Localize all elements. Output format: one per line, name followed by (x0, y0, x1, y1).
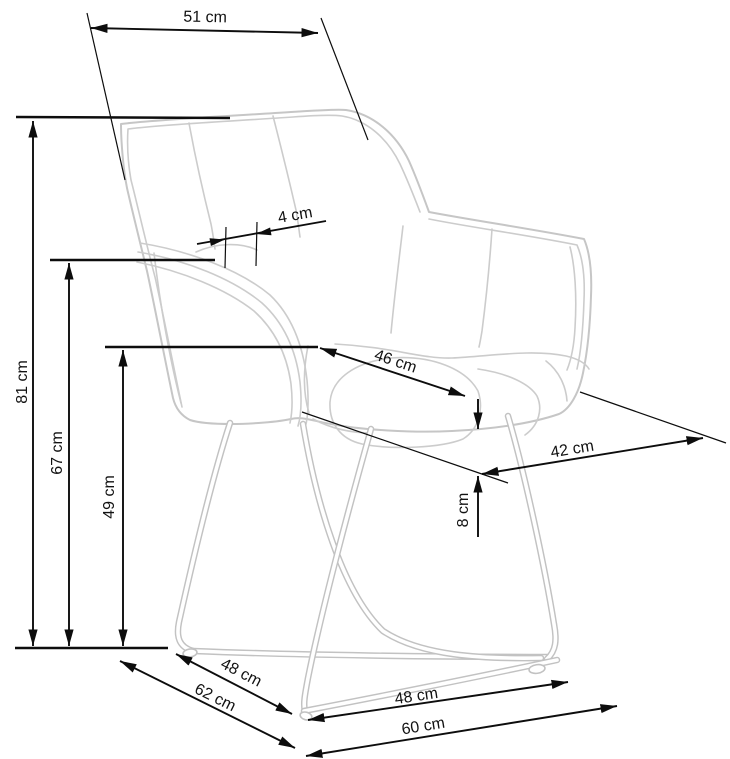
backrest-right-piping (429, 219, 584, 369)
dimension-67cm: 67 cm (49, 260, 215, 646)
dimension-4cm: 4 cm (197, 204, 326, 268)
armrest-roll-line-1 (140, 243, 308, 428)
dim-label-42cm: 42 cm (549, 438, 595, 462)
dim-label-48cm-side: 48 cm (218, 655, 265, 690)
dimension-51cm: 51 cm (87, 9, 368, 180)
chair-body (121, 110, 591, 448)
chair-dimension-drawing: 51 cm 4 cm 46 cm 42 cm 8 cm (0, 0, 730, 759)
extension-line (87, 13, 125, 180)
dimension-diagram-page: 51 cm 4 cm 46 cm 42 cm 8 cm (0, 0, 730, 759)
dimension-81cm: 81 cm (14, 117, 230, 646)
extension-line (580, 392, 726, 443)
dim-label-8cm: 8 cm (455, 493, 472, 528)
tick-line (256, 222, 257, 266)
dim-label-62cm: 62 cm (192, 681, 239, 715)
tick-line (225, 227, 226, 268)
dimension-arrow (120, 661, 295, 748)
dim-label-67cm: 67 cm (49, 431, 66, 475)
chair-shell-outline (121, 110, 591, 432)
dimension-arrow (91, 28, 318, 33)
seat-right-seam (546, 361, 567, 401)
base-left-leg (178, 423, 230, 651)
extension-line (321, 18, 368, 140)
dimension-8cm: 8 cm (455, 399, 478, 537)
armrest-roll-line-3 (137, 262, 292, 423)
dimension-46cm: 46 cm (320, 347, 465, 396)
armrest-pad-edge (196, 245, 257, 252)
backrest-back-channel-1 (189, 123, 215, 249)
backrest-right-piping-inner (567, 247, 576, 370)
base-right-leg (508, 416, 556, 659)
dimension-annotations: 51 cm 4 cm 46 cm 42 cm 8 cm (14, 9, 726, 756)
arrowhead (256, 228, 272, 236)
backrest-front-channel-1 (391, 226, 403, 333)
reference-line-top (16, 117, 230, 118)
backrest-front-channel-2 (479, 229, 492, 347)
dim-label-51cm: 51 cm (183, 9, 227, 27)
dim-label-49cm: 49 cm (101, 475, 118, 519)
dim-label-81cm: 81 cm (14, 360, 31, 404)
dim-label-48cm-front: 48 cm (394, 685, 440, 708)
dimension-62cm: 62 cm (120, 661, 295, 748)
